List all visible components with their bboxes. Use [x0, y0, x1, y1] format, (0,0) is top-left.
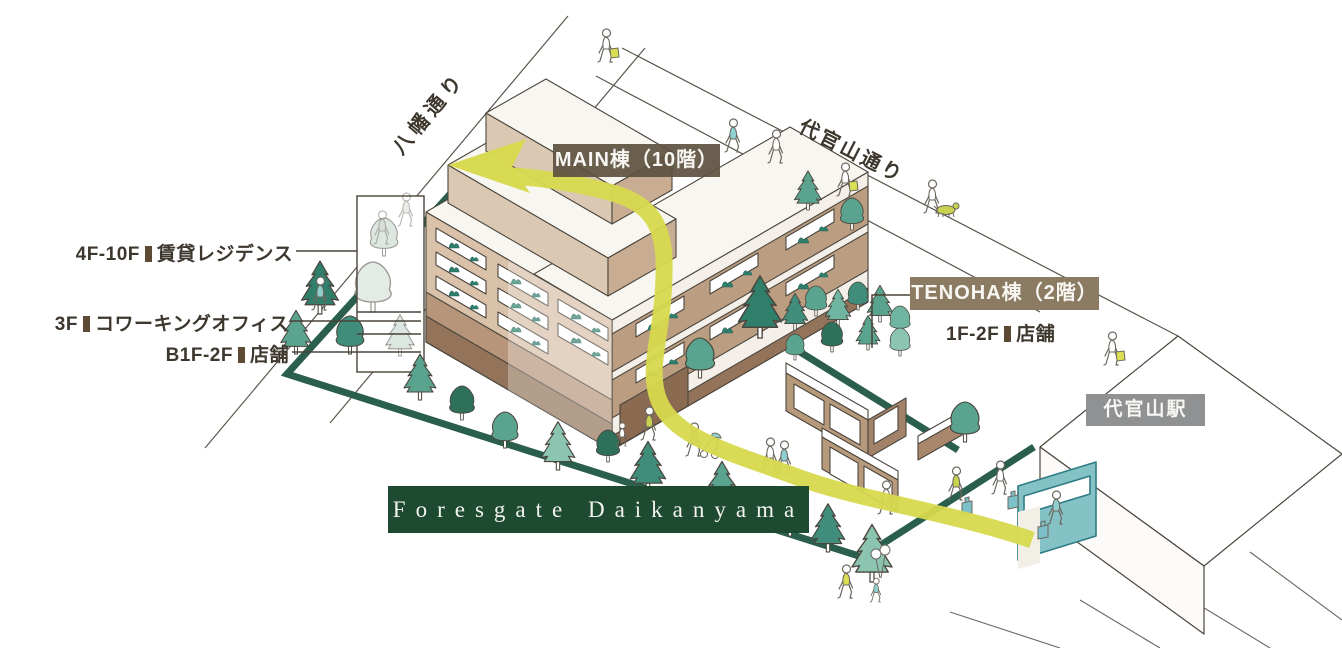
- main-building-label: MAIN棟（10階）: [553, 144, 720, 177]
- main-floor-label-residence: 4F-10F賃貸レジデンス: [76, 239, 293, 266]
- site-name-banner: Foresgate Daikanyama: [388, 486, 809, 533]
- tenoha-floor-label-shops: 1F-2F店舗: [946, 319, 1055, 346]
- floor-range: 4F-10F: [76, 244, 140, 265]
- floor-range: 3F: [55, 314, 78, 335]
- station-entrance: [1018, 462, 1096, 569]
- site-illustration-map: 八幡通り 代官山通り MAIN棟（10階） 4F-10F賃貸レジデンス 3Fコワ…: [0, 0, 1342, 648]
- floor-marker-icon: [145, 246, 152, 262]
- pedestrian-icon: [1104, 332, 1119, 365]
- station-label: 代官山駅: [1086, 394, 1205, 426]
- residence-callout-box: [355, 193, 424, 372]
- main-floor-label-shops: B1F-2F店舗: [166, 340, 289, 367]
- main-floor-label-coworking: 3Fコワーキングオフィス: [55, 309, 289, 336]
- floor-range: B1F-2F: [166, 345, 233, 366]
- floor-use: コワーキングオフィス: [95, 314, 289, 335]
- pedestrian-icon: [838, 565, 853, 598]
- pedestrian-icon: [992, 461, 1007, 494]
- tree-icon: [450, 386, 475, 420]
- floor-marker-icon: [238, 347, 245, 363]
- floor-marker-icon: [83, 316, 90, 332]
- floor-use: 店舗: [1016, 324, 1055, 345]
- floor-marker-icon: [1004, 326, 1011, 342]
- tenoha-building-label: TENOHA棟（2階）: [910, 277, 1099, 310]
- floor-range: 1F-2F: [946, 324, 999, 345]
- dog-icon: [934, 203, 959, 217]
- floor-use: 店舗: [250, 345, 289, 366]
- pedestrian-icon: [725, 119, 740, 152]
- floor-use: 賃貸レジデンス: [157, 244, 293, 265]
- station-building: [1018, 336, 1342, 634]
- pedestrian-icon: [598, 29, 613, 62]
- suitcase-icon: [1008, 491, 1018, 509]
